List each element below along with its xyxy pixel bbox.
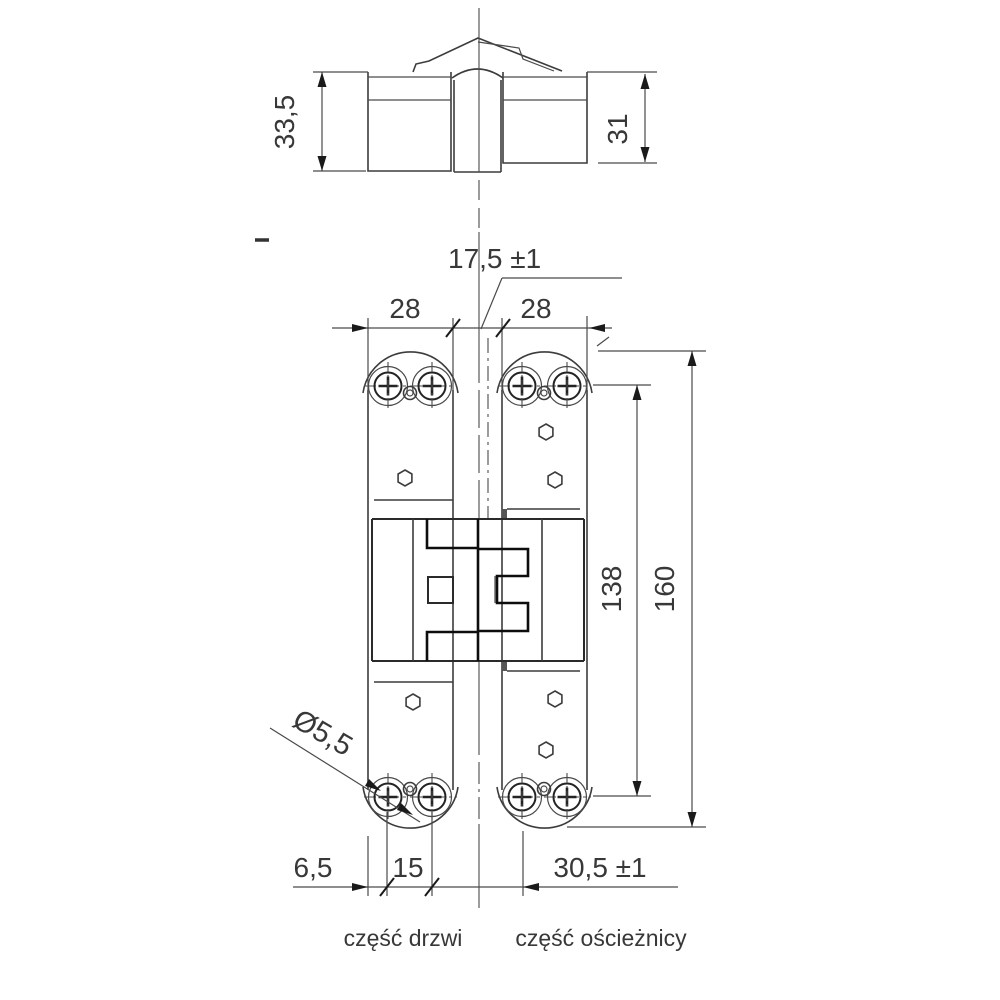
screw [548,773,587,821]
dim-33-5-label: 33,5 [269,95,300,150]
hex-hole [539,742,553,758]
hex-hole [539,424,553,440]
hex-hole [398,470,412,486]
top-view-body [368,38,587,172]
notch [502,509,507,519]
dim-30-5-label: 30,5 ±1 [553,852,646,883]
center-axis [479,8,488,908]
top-view: 33,5 31 [269,38,657,172]
dim-31-label: 31 [602,113,633,144]
captions: część drzwi część ościeżnicy [344,925,688,951]
screw [413,362,452,410]
notch [502,662,507,671]
dim-hole-diameter: Ø5,5 [270,704,420,822]
dim-6-5-label: 6,5 [294,852,333,883]
hinge-drawing: 33,5 31 [0,0,1000,1000]
knuckle-cap-inner [478,42,554,71]
dim-15-label: 15 [392,852,423,883]
link-window [428,577,453,603]
dim-31: 31 [587,72,657,163]
dim-plate-widths: 28 28 [332,293,612,392]
dim-28-right-label: 28 [520,293,551,324]
dim-28-left-label: 28 [389,293,420,324]
hex-hole [548,472,562,488]
screw [503,773,542,821]
technical-drawing-canvas: { "colors": { "background": "#ffffff", "… [0,0,1000,1000]
dim-heights: 138 160 [567,337,706,827]
door-plate [363,352,458,828]
dim-gap-label: 17,5 ±1 [448,243,541,274]
dim-160-label: 160 [649,566,680,613]
hex-hole [406,694,420,710]
dim-33-5: 33,5 [269,72,368,171]
dim-138-label: 138 [596,566,627,613]
pin-hole [404,387,417,400]
caption-door-part: część drzwi [344,925,463,951]
caption-frame-part: część ościeżnicy [515,925,687,951]
frame-plate [497,352,592,828]
hinge-body [372,519,584,661]
dim-bottom: 6,5 15 30,5 ±1 [293,812,678,896]
screw [369,773,408,821]
dim-diameter-label: Ø5,5 [287,704,357,763]
hex-hole [548,691,562,707]
